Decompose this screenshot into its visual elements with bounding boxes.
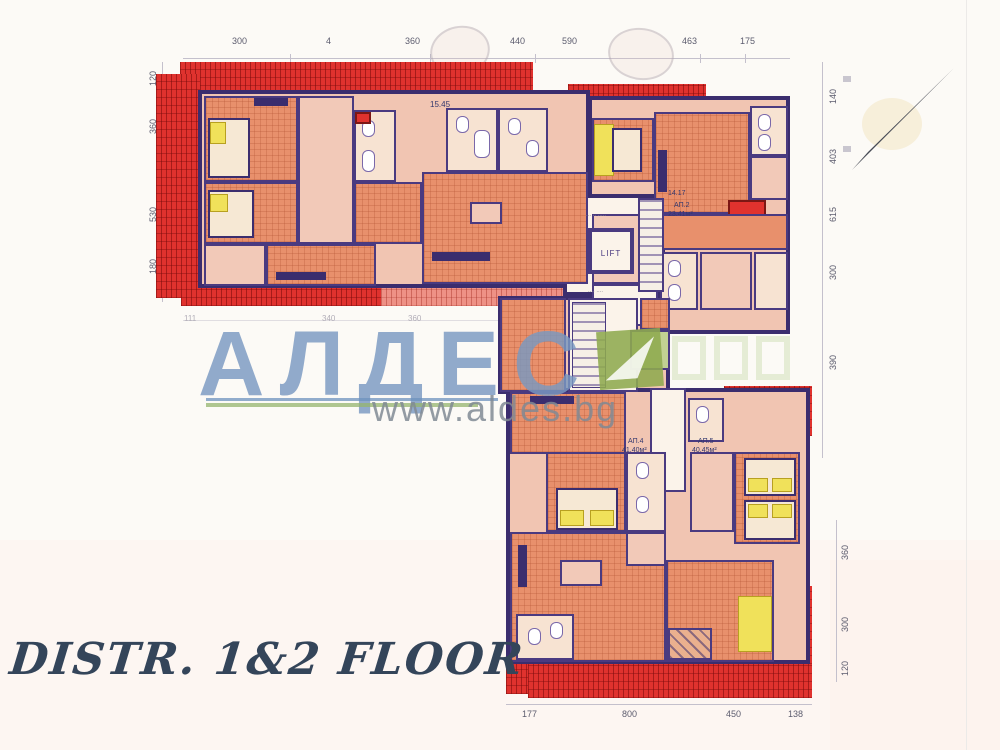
dim-right: 300 [828,265,838,280]
dimension-tick [535,54,536,63]
watermark-ghost-letter [672,336,706,380]
bathroom [498,108,548,172]
table [470,202,502,224]
small-room [204,244,266,286]
apartment-area-label: 40.45м² [692,447,717,454]
toilet-fixture [636,496,649,513]
north-arrow-icon [848,66,958,174]
dim-inner: 111 [184,314,196,323]
living-room [422,172,588,284]
dim-bottom: 138 [788,709,803,719]
corridor [298,96,354,244]
bed [612,128,642,172]
room [354,182,422,244]
toilet-fixture [526,140,539,157]
sink-fixture [668,260,681,277]
dining-table [560,560,602,586]
dimension-line-right-lower [836,520,837,682]
lift-shaft: LIFT [588,228,634,274]
tub-fixture [474,130,490,158]
dim-top: 300 [232,36,247,46]
dim-top: 4 [326,36,331,46]
dim-right-lower: 300 [840,617,850,632]
watermark-ghost-letter [756,336,790,380]
bed-pillow [772,478,792,492]
stamp-mark [605,24,678,85]
dimension-line-right [822,62,823,458]
sofa [432,252,490,261]
arrow-icon [603,336,657,380]
apartment-label: АП.5 [698,438,713,445]
bed-pillow [210,194,228,212]
dim-right: 390 [828,355,838,370]
bed-pillow [560,510,584,526]
edge-mark [843,146,851,152]
dim-right: 140 [828,89,838,104]
sofa [658,150,667,192]
dim-right: 403 [828,149,838,164]
roof-strip-left [156,74,200,298]
bed-pillow [210,122,226,144]
toilet-fixture [362,150,375,172]
dim-top: 360 [405,36,420,46]
red-unit [355,112,371,124]
sink-fixture [508,118,521,135]
dim-top: 175 [740,36,755,46]
sofa [518,545,527,587]
toilet-fixture [758,134,771,151]
apartment-area-label: 23.41м² [668,211,693,218]
dim-bottom: 800 [622,709,637,719]
roof-strip-bottomwing-bottom [528,662,812,698]
dim-bottom: 450 [726,709,741,719]
watermark-ghost-letter [714,336,748,380]
toilet-fixture [528,628,541,645]
apartment-label: АП.2 [674,202,689,209]
sheet-title: DISTR. 1&2 FLOOR [7,634,527,685]
sink-fixture [696,406,709,423]
bed-pillow [748,478,768,492]
room-label: 14.17 [668,190,686,197]
dim-left: 120 [148,71,158,86]
dim-left: 180 [148,259,158,274]
sink-fixture [636,462,649,479]
living-room [654,112,750,214]
dim-top: 590 [562,36,577,46]
staircase-upper [638,198,664,292]
dimension-line-bottom [506,704,812,705]
staircase-diagonal [668,628,712,660]
dim-top: 463 [682,36,697,46]
bathroom [446,108,498,172]
bathroom [754,252,788,310]
dim-left: 530 [148,207,158,222]
dimension-tick [700,54,701,63]
bed-pillow [590,510,614,526]
room-label: 15.45 [430,101,450,109]
sofa [276,272,326,280]
dim-bottom: 177 [522,709,537,719]
dim-top: 440 [510,36,525,46]
dim-right: 615 [828,207,838,222]
bed-yellow [594,124,614,176]
bed-yellow [738,596,772,652]
edge-mark [843,76,851,82]
watermark-url-text: www.aldes.bg [372,388,618,430]
roof-strip-bottom-leftwing [181,286,381,306]
watermark-logo-icon [596,328,664,390]
bed-pillow [772,504,792,518]
lift-label: LIFT [592,249,630,258]
room [690,452,734,532]
hall [626,532,666,566]
sink-fixture [758,114,771,131]
small-room [750,156,788,200]
paper-wash-right [830,560,1000,750]
sink-fixture [456,116,469,133]
bed-pillow [748,504,768,518]
dim-right-lower: 120 [840,661,850,676]
sink-fixture [550,622,563,639]
wardrobe [254,98,288,106]
dimension-tick [745,54,746,63]
apartment-label: АП.4 [628,438,643,445]
apartment-area-label: 41.40м² [622,447,647,454]
dim-left: 360 [148,119,158,134]
small-room [640,298,670,330]
core-note: .... .... [588,288,603,294]
floorplan-scan: ..... .... LIFT ... .. ..... .... .... 1… [0,0,1000,750]
dim-right-lower: 360 [840,545,850,560]
room [700,252,752,310]
core-note: ... .. ..... [586,212,606,218]
paper-fold-line [966,0,967,750]
room [660,214,788,250]
